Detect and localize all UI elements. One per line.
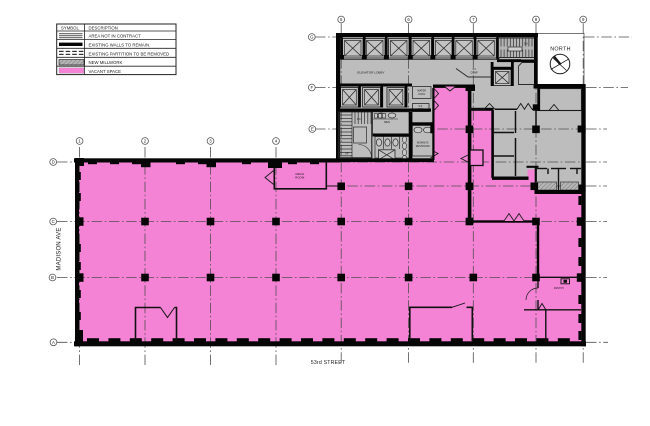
svg-text:UP: UP	[345, 152, 349, 156]
svg-text:SYMBOL: SYMBOL	[61, 25, 80, 30]
svg-text:G: G	[310, 35, 314, 40]
svg-text:C: C	[52, 219, 55, 224]
svg-text:53rd STREET: 53rd STREET	[311, 360, 346, 366]
svg-text:ROOM: ROOM	[295, 176, 305, 180]
svg-text:RESTROOM: RESTROOM	[416, 145, 430, 148]
svg-text:AREA NOT IN CONTRACT: AREA NOT IN CONTRACT	[89, 34, 142, 39]
svg-text:D: D	[52, 160, 55, 165]
svg-text:MEN: MEN	[384, 120, 390, 124]
svg-text:COMP: COMP	[471, 71, 479, 74]
svg-text:A: A	[52, 340, 55, 345]
svg-text:EXISTING PARTITION TO BE REMOV: EXISTING PARTITION TO BE REMOVED	[89, 51, 170, 56]
svg-text:COOL: COOL	[417, 108, 424, 111]
svg-text:DESCRIPTION: DESCRIPTION	[89, 25, 118, 30]
svg-text:NEW MILLWORK: NEW MILLWORK	[89, 60, 123, 65]
svg-text:COOL: COOL	[418, 93, 426, 96]
svg-text:E: E	[311, 127, 314, 132]
svg-text:DN: DN	[524, 43, 528, 46]
svg-text:ELEVATOR LOBBY: ELEVATOR LOBBY	[357, 71, 384, 75]
svg-text:DN: DN	[357, 118, 361, 121]
svg-text:F: F	[310, 85, 313, 90]
svg-text:MADISON AVE: MADISON AVE	[57, 227, 63, 270]
svg-text:VACANT SPACE: VACANT SPACE	[89, 69, 122, 74]
svg-text:PANTRY: PANTRY	[554, 286, 565, 290]
svg-text:B: B	[51, 275, 54, 280]
svg-text:NORTH: NORTH	[550, 47, 571, 53]
svg-text:EXISTING WALLS TO REMAIN.: EXISTING WALLS TO REMAIN.	[89, 42, 151, 47]
